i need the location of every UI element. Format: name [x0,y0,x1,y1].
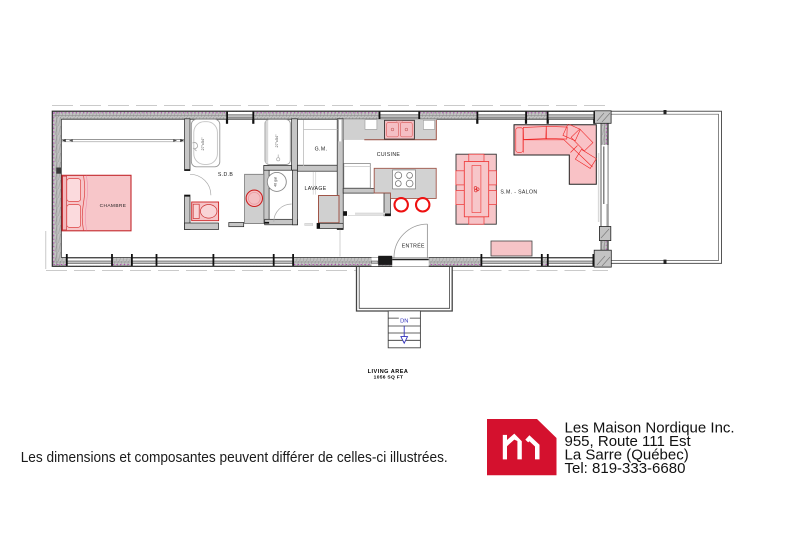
svg-text:40 gal: 40 gal [273,177,277,187]
svg-text:ENTRÉE: ENTRÉE [402,242,425,249]
svg-text:CUISINE: CUISINE [377,152,401,158]
svg-text:27"x54": 27"x54" [201,137,205,151]
svg-text:DN: DN [400,319,408,325]
svg-text:Les dimensions et composantes: Les dimensions et composantes peuvent di… [21,450,448,466]
svg-text:LIVING AREA: LIVING AREA [368,369,409,375]
svg-text:S.M. - SALON: S.M. - SALON [500,190,537,196]
svg-text:Tel: 819-333-6680: Tel: 819-333-6680 [565,460,686,477]
svg-text:CHAMBRE: CHAMBRE [100,203,127,209]
svg-text:27"x54": 27"x54" [275,134,279,148]
svg-text:1056 SQ FT: 1056 SQ FT [374,374,404,380]
svg-text:S.D.B: S.D.B [218,172,233,178]
svg-text:LAVAGE: LAVAGE [304,186,326,192]
svg-text:G.M.: G.M. [315,147,328,153]
